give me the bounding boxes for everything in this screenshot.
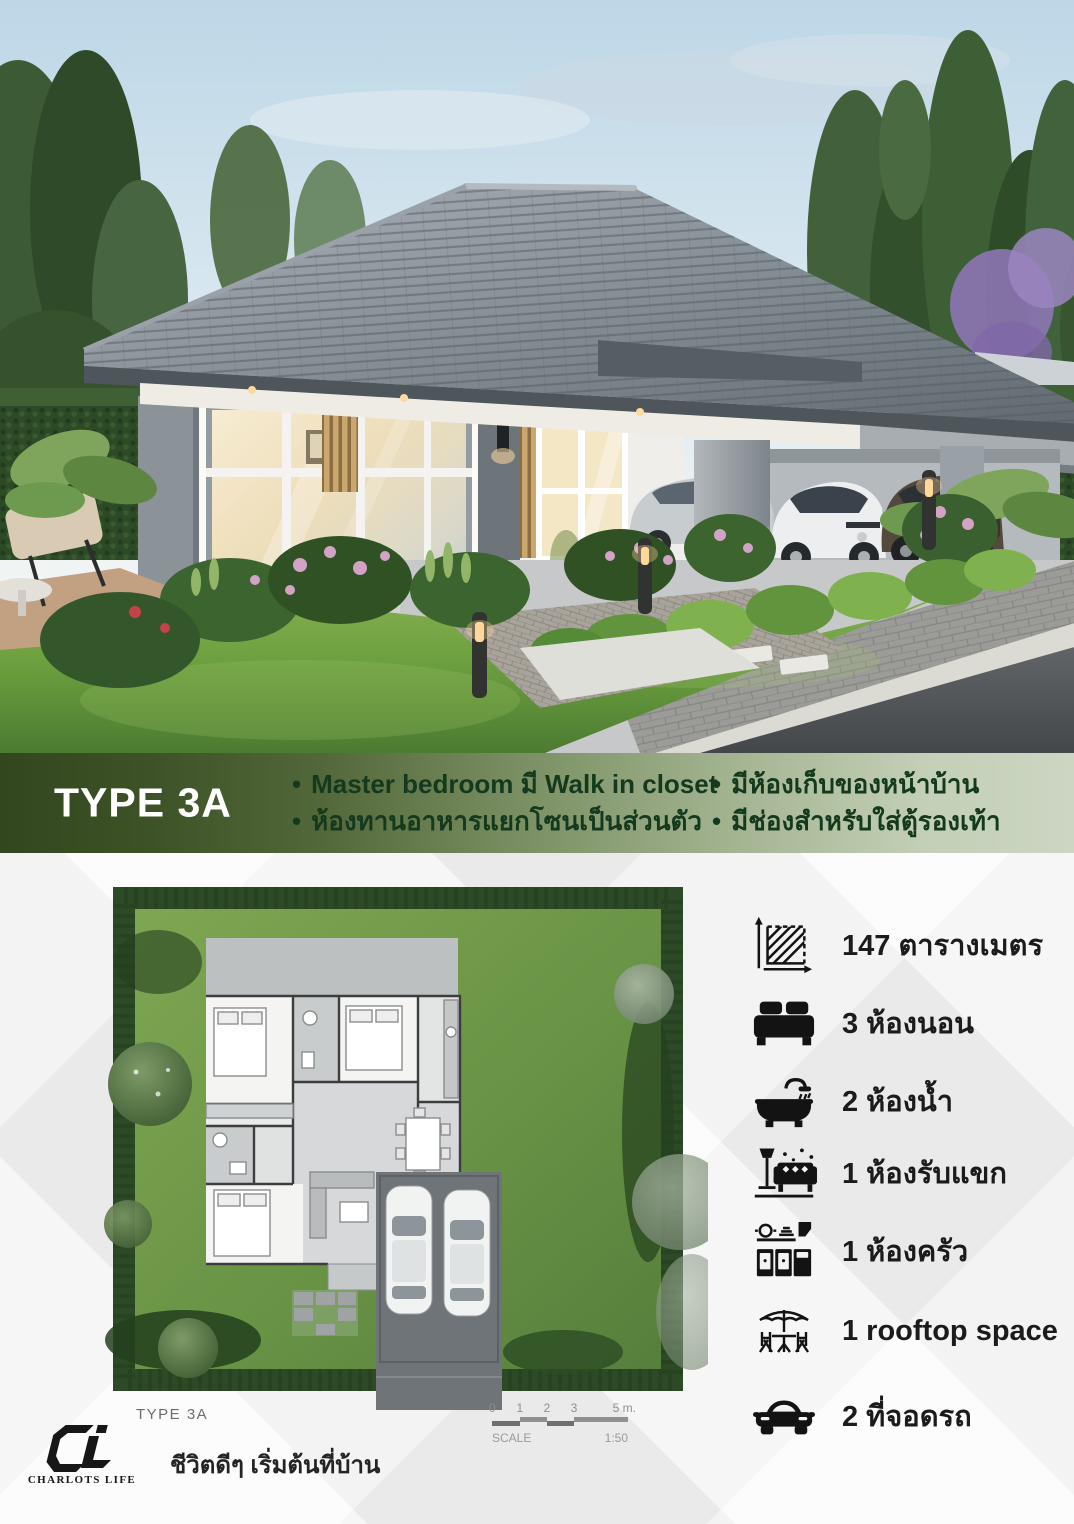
spec-label: 1 rooftop space [842,1315,1058,1348]
spec-area: 147 ตารางเมตร [748,906,1043,984]
plan-back-patio [206,938,458,996]
kitchen-icon [748,1220,820,1282]
bath-icon [748,1074,820,1128]
feature-bullets-right: มีห้องเก็บของหน้าบ้าน มีช่องสำหรับใส่ตู้… [712,766,1001,840]
scale-ticks: 0 1 2 3 5 m. [492,1401,628,1415]
spec-label: 3 ห้องนอน [842,1000,974,1046]
wall-sconce-light [497,424,509,452]
scale-tick: 2 [544,1401,551,1415]
bullet-shoe-cabinet: มีช่องสำหรับใส่ตู้รองเท้า [712,803,1001,840]
hero-photo-illustration [0,0,1074,753]
spec-living-room: 1 ห้องรับแขก [748,1134,1007,1212]
charlots-life-logo [42,1424,120,1479]
spec-label: 2 ห้องน้ำ [842,1078,953,1124]
spec-kitchen: 1 ห้องครัว [748,1212,968,1290]
bed-icon [748,1000,820,1046]
bullet-storage-room: มีห้องเก็บของหน้าบ้าน [712,766,1001,803]
brand-tagline: ชีวิตดีๆ เริ่มต้นที่บ้าน [170,1445,380,1484]
scale-tick: 5 m. [613,1401,636,1415]
sofa-icon [748,1144,820,1202]
scale-tick: 3 [571,1401,578,1415]
spec-parking: 2 ที่จอดรถ [748,1377,972,1455]
scale-bar-segments [492,1417,628,1427]
scale-label: SCALE [492,1431,531,1445]
umbrella-icon [748,1302,820,1360]
spec-bedrooms: 3 ห้องนอน [748,984,974,1062]
plan-type-label: TYPE 3A [136,1406,208,1423]
spec-label: 1 ห้องรับแขก [842,1150,1007,1196]
spec-label: 2 ที่จอดรถ [842,1393,972,1439]
scale-tick: 0 [489,1401,496,1415]
hero-photo [0,0,1074,753]
plan-car [386,1186,432,1314]
feature-bullets-left: Master bedroom มี Walk in closet ห้องทาน… [292,766,717,840]
area-icon [748,914,820,976]
plan-car [444,1190,490,1316]
bullet-master-bedroom: Master bedroom มี Walk in closet [292,766,717,803]
scale-tick: 1 [517,1401,524,1415]
plan-section: TYPE 3A 0 1 2 3 5 m. SCALE 1:50 [0,853,1074,1524]
spec-label: 1 ห้องครัว [842,1228,968,1274]
plan-entrance-steps [328,1264,384,1290]
bullet-dining-zone: ห้องทานอาหารแยกโซนเป็นส่วนตัว [292,803,717,840]
car-icon [748,1396,820,1436]
site-plan [88,872,708,1417]
type-band: TYPE 3A Master bedroom มี Walk in closet… [0,753,1074,853]
spec-rooftop: 1 rooftop space [748,1292,1058,1370]
brand-name: CHARLOTS LIFE [26,1474,138,1486]
spec-label: 147 ตารางเมตร [842,922,1043,968]
scale-ratio: 1:50 [605,1431,628,1445]
spec-bathrooms: 2 ห้องน้ำ [748,1062,953,1140]
plan-carport [376,1172,502,1410]
type-title: TYPE 3A [54,780,232,827]
plan-porch-tiles [292,1290,358,1336]
scale-bar: 0 1 2 3 5 m. SCALE 1:50 [492,1401,628,1445]
brochure-page: TYPE 3A Master bedroom มี Walk in closet… [0,0,1074,1524]
